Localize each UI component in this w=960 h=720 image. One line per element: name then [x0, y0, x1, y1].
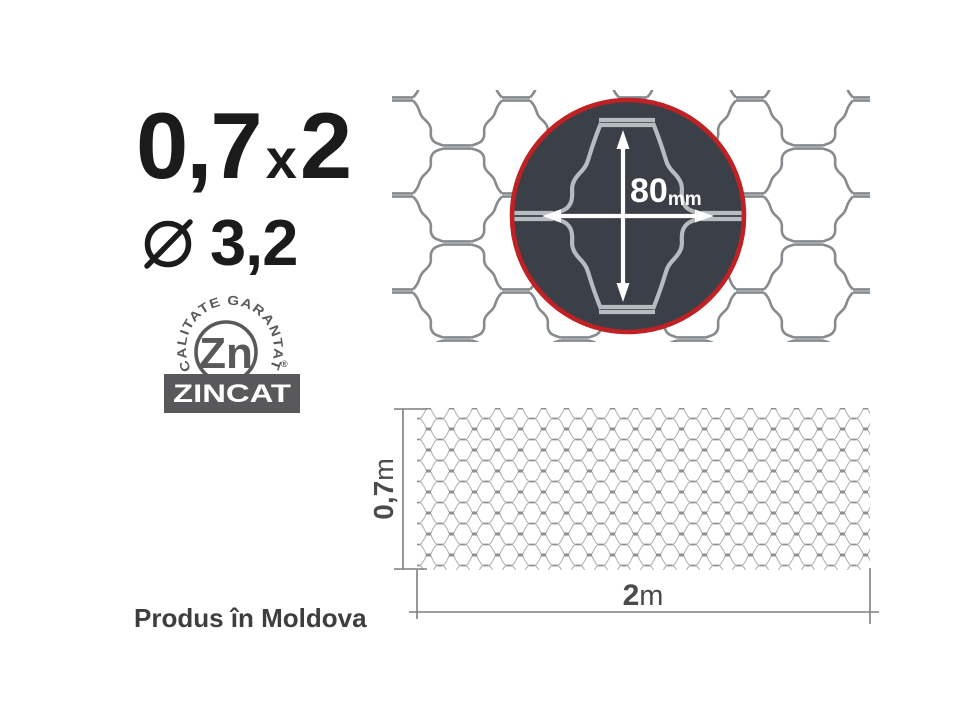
width-dimension-value: 2 — [623, 579, 640, 612]
title-length-value: 2 — [300, 99, 350, 193]
title-height-value: 0,7 — [136, 99, 261, 193]
width-dimension-label: 2m — [623, 579, 664, 612]
diameter-row: 3,2 — [141, 210, 297, 275]
sample-diagram: 0,7m 2m — [365, 395, 885, 635]
diameter-icon — [141, 214, 197, 272]
cell-size-unit: mm — [668, 189, 702, 210]
quality-badge: CALITATE GARANTATĂ Zn ® ZINCAT — [157, 290, 307, 418]
title-block: 0,7 x 2 — [136, 99, 350, 193]
height-dimension-value: 0,7 — [368, 481, 399, 520]
height-dimension-label: 0,7m — [368, 458, 399, 519]
diameter-value: 3,2 — [210, 210, 297, 275]
zincat-label: ZINCAT — [173, 380, 291, 408]
cell-size-value: 80 — [630, 172, 668, 210]
product-card: 0,7 x 2 3,2 CALITATE GARANTATĂ Zn ® ZINC… — [0, 0, 960, 720]
registered-mark: ® — [281, 359, 288, 369]
magnifier-circle: 80mm — [505, 94, 751, 340]
height-dimension-unit: m — [369, 458, 399, 481]
title-separator: x — [266, 131, 295, 187]
width-dimension-unit: m — [639, 580, 663, 612]
zn-symbol: Zn — [199, 329, 253, 378]
sample-mesh — [417, 408, 870, 570]
origin-text: Produs în Moldova — [134, 603, 367, 634]
